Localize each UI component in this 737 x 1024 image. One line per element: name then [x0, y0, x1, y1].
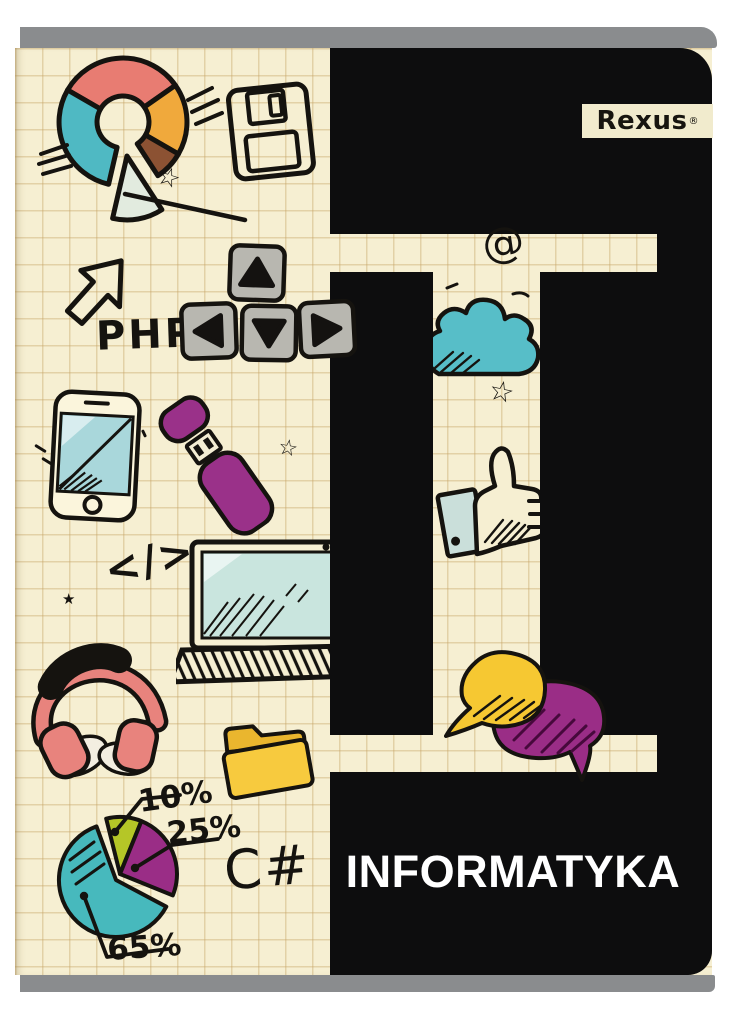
thumbs-up-icon [435, 442, 540, 564]
laptop-icon [176, 536, 332, 692]
brand-name: Rexus [597, 106, 688, 136]
top-page-edge [20, 27, 717, 48]
smartphone-icon [42, 386, 147, 529]
bottom-page-edge [20, 975, 715, 992]
cloud-icon [433, 282, 540, 394]
star-icon: ☆ [276, 436, 299, 461]
brand-logo: Rexus® [582, 104, 713, 138]
floppy-disk-icon [219, 75, 323, 188]
at-symbol-label: @ [479, 215, 527, 269]
speech-bubbles-icon [444, 620, 619, 790]
star-icon: ☆ [486, 376, 516, 409]
cover-title: INFORMATYKA [338, 846, 688, 898]
donut-chart-doodle [35, 48, 255, 248]
notebook-cover-photo: { "cover": { "brand": { "name": "Rexus",… [0, 0, 737, 1024]
pie-label-65: 65% [106, 927, 183, 968]
headphones-icon [12, 617, 175, 791]
csharp-label: C# [221, 832, 313, 902]
registered-mark: ® [688, 116, 698, 127]
small-star-icon: ★ [62, 592, 75, 607]
